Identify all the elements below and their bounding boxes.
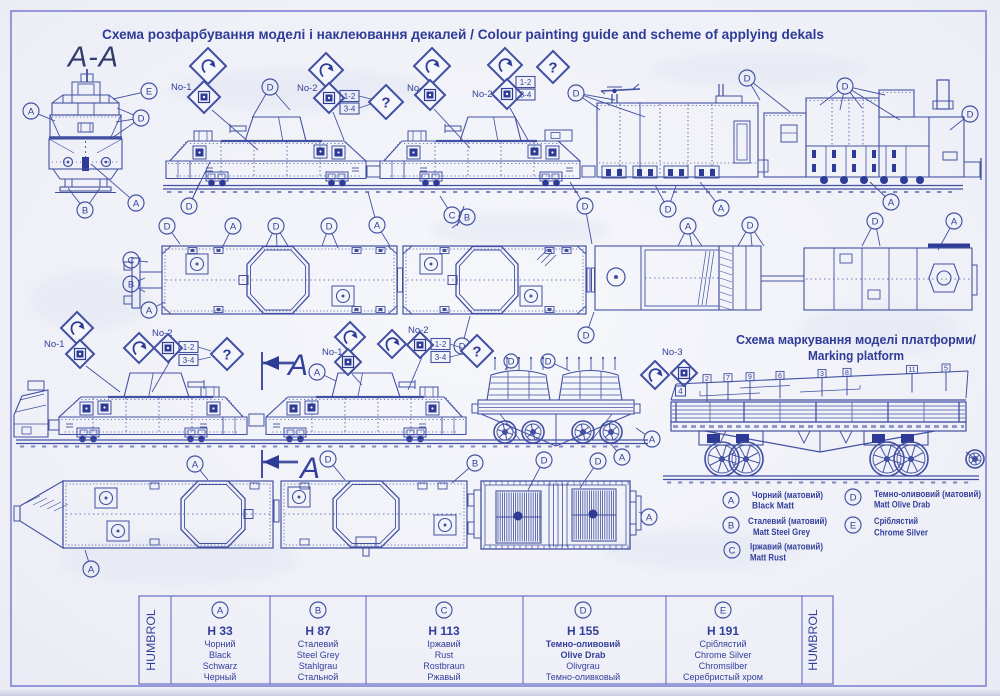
- svg-text:A: A: [146, 306, 153, 317]
- svg-text:No-1: No-1: [171, 82, 192, 93]
- svg-text:Olive Drab: Olive Drab: [560, 650, 606, 660]
- svg-text:11: 11: [908, 367, 915, 374]
- svg-text:Marking platform: Marking platform: [808, 348, 904, 363]
- svg-text:1-2: 1-2: [435, 340, 447, 349]
- svg-text:E: E: [146, 87, 152, 98]
- svg-text:1-2: 1-2: [520, 78, 532, 87]
- svg-text:A: A: [374, 221, 381, 232]
- svg-text:2: 2: [705, 376, 709, 383]
- svg-text:Chromsilber: Chromsilber: [699, 661, 748, 671]
- svg-text:Темно-оливовий: Темно-оливовий: [546, 639, 621, 649]
- svg-text:A: A: [619, 453, 626, 464]
- svg-text:C: C: [441, 606, 448, 617]
- svg-text:?: ?: [381, 95, 390, 112]
- svg-text:Steel Grey: Steel Grey: [297, 650, 340, 660]
- svg-text:A: A: [728, 496, 735, 507]
- svg-text:A: A: [217, 606, 224, 617]
- svg-text:D: D: [850, 493, 857, 504]
- svg-text:C: C: [729, 546, 736, 557]
- svg-text:A: A: [230, 222, 237, 233]
- svg-text:B: B: [464, 213, 470, 224]
- svg-text:HUMBROL: HUMBROL: [144, 609, 158, 671]
- svg-text:Stahlgrau: Stahlgrau: [299, 661, 338, 671]
- svg-text:Сталевий: Сталевий: [298, 639, 339, 649]
- svg-text:Темно-оливовий (матовий): Темно-оливовий (матовий): [874, 489, 981, 500]
- svg-text:3-4: 3-4: [435, 353, 447, 362]
- svg-text:A: A: [718, 204, 725, 215]
- svg-text:3: 3: [820, 371, 824, 378]
- svg-text:3-4: 3-4: [344, 105, 356, 114]
- svg-text:D: D: [325, 455, 332, 466]
- svg-text:Сталевий (матовий): Сталевий (матовий): [748, 516, 827, 527]
- svg-text:Іржавий (матовий): Іржавий (матовий): [750, 542, 823, 553]
- svg-text:1-2: 1-2: [183, 343, 195, 352]
- svg-text:Matt Olive Drab: Matt Olive Drab: [874, 500, 930, 511]
- svg-text:D: D: [842, 82, 849, 93]
- svg-text:9: 9: [748, 374, 752, 381]
- svg-text:A: A: [314, 368, 321, 379]
- svg-text:Схема розфарбування моделі і н: Схема розфарбування моделі і наклеювання…: [102, 27, 824, 42]
- svg-text:Сріблястий: Сріблястий: [699, 639, 746, 649]
- svg-text:1-2: 1-2: [344, 92, 356, 101]
- svg-text:HUMBROL: HUMBROL: [806, 609, 820, 671]
- svg-text:Чорний: Чорний: [204, 639, 235, 649]
- svg-text:C: C: [449, 211, 456, 222]
- svg-text:D: D: [744, 74, 751, 85]
- svg-text:B: B: [472, 459, 478, 470]
- svg-text:D: D: [545, 357, 552, 368]
- svg-text:Black: Black: [209, 650, 232, 660]
- svg-text:?: ?: [472, 344, 481, 361]
- svg-text:H 155: H 155: [567, 624, 599, 638]
- svg-text:Темно-оливковый: Темно-оливковый: [546, 672, 620, 682]
- svg-text:D: D: [872, 217, 879, 228]
- svg-text:A-A: A-A: [66, 42, 119, 74]
- svg-text:D: D: [747, 221, 754, 232]
- svg-text:Olivgrau: Olivgrau: [566, 661, 600, 671]
- svg-text:No-1: No-1: [44, 339, 65, 350]
- svg-text:Schwarz: Schwarz: [203, 661, 238, 671]
- svg-text:Чорний (матовий): Чорний (матовий): [752, 490, 823, 501]
- svg-text:E: E: [850, 521, 856, 532]
- svg-text:A: A: [286, 349, 308, 382]
- svg-text:D: D: [580, 606, 587, 617]
- svg-text:E: E: [720, 606, 726, 617]
- svg-text:7: 7: [726, 375, 730, 382]
- svg-text:Черный: Черный: [204, 672, 236, 682]
- svg-text:D: D: [138, 114, 145, 125]
- svg-text:6: 6: [778, 373, 782, 380]
- svg-text:Matt Steel Grey: Matt Steel Grey: [753, 527, 811, 538]
- svg-text:Схема маркування моделі платфо: Схема маркування моделі платформи/: [736, 332, 976, 347]
- svg-text:?: ?: [548, 60, 557, 77]
- svg-text:Серебристый хром: Серебристый хром: [683, 672, 763, 682]
- svg-text:No-2: No-2: [297, 83, 318, 94]
- svg-text:?: ?: [222, 347, 231, 364]
- svg-text:D: D: [583, 331, 590, 342]
- svg-text:H 87: H 87: [305, 624, 331, 638]
- svg-text:D: D: [164, 222, 171, 233]
- svg-text:D: D: [595, 457, 602, 468]
- svg-text:A: A: [133, 199, 140, 210]
- svg-text:Chrome Silver: Chrome Silver: [874, 528, 928, 539]
- svg-text:4: 4: [678, 387, 683, 396]
- svg-text:Rust: Rust: [435, 650, 454, 660]
- svg-text:Ржавый: Ржавый: [427, 672, 460, 682]
- svg-text:Сріблястий: Сріблястий: [874, 516, 918, 527]
- svg-text:D: D: [967, 110, 974, 121]
- svg-text:D: D: [541, 456, 548, 467]
- svg-text:Rostbraun: Rostbraun: [423, 661, 465, 671]
- svg-text:D: D: [326, 222, 333, 233]
- svg-text:No-2: No-2: [472, 89, 493, 100]
- svg-text:A: A: [192, 460, 199, 471]
- svg-text:H 33: H 33: [207, 624, 233, 638]
- svg-text:3-4: 3-4: [520, 91, 532, 100]
- svg-text:D: D: [273, 222, 280, 233]
- svg-text:B: B: [728, 521, 734, 532]
- svg-text:D: D: [508, 357, 515, 368]
- svg-text:D: D: [665, 205, 672, 216]
- svg-text:D: D: [573, 89, 580, 100]
- svg-text:H 113: H 113: [428, 624, 460, 638]
- svg-text:5: 5: [944, 366, 948, 373]
- svg-text:A: A: [951, 217, 958, 228]
- svg-text:A: A: [685, 222, 692, 233]
- svg-text:B: B: [128, 280, 134, 291]
- svg-text:A: A: [646, 513, 653, 524]
- svg-text:A: A: [88, 565, 95, 576]
- svg-text:Matt Rust: Matt Rust: [750, 553, 787, 564]
- svg-text:D: D: [582, 202, 589, 213]
- svg-text:A: A: [649, 435, 656, 446]
- svg-text:8: 8: [845, 370, 849, 377]
- svg-text:D: D: [186, 202, 193, 213]
- svg-text:No-3: No-3: [662, 347, 683, 358]
- svg-text:C: C: [128, 256, 135, 267]
- svg-text:Стальной: Стальной: [298, 672, 338, 682]
- svg-text:A: A: [28, 107, 35, 118]
- svg-text:D: D: [267, 83, 274, 94]
- svg-text:A: A: [298, 452, 320, 485]
- svg-text:Іржавий: Іржавий: [427, 639, 460, 649]
- svg-text:3-4: 3-4: [183, 356, 195, 365]
- svg-text:H 191: H 191: [707, 624, 739, 638]
- svg-text:Chrome Silver: Chrome Silver: [694, 650, 751, 660]
- svg-text:Black Matt: Black Matt: [752, 501, 795, 512]
- svg-text:B: B: [315, 606, 321, 617]
- svg-text:A: A: [888, 198, 895, 209]
- svg-text:B: B: [82, 206, 88, 217]
